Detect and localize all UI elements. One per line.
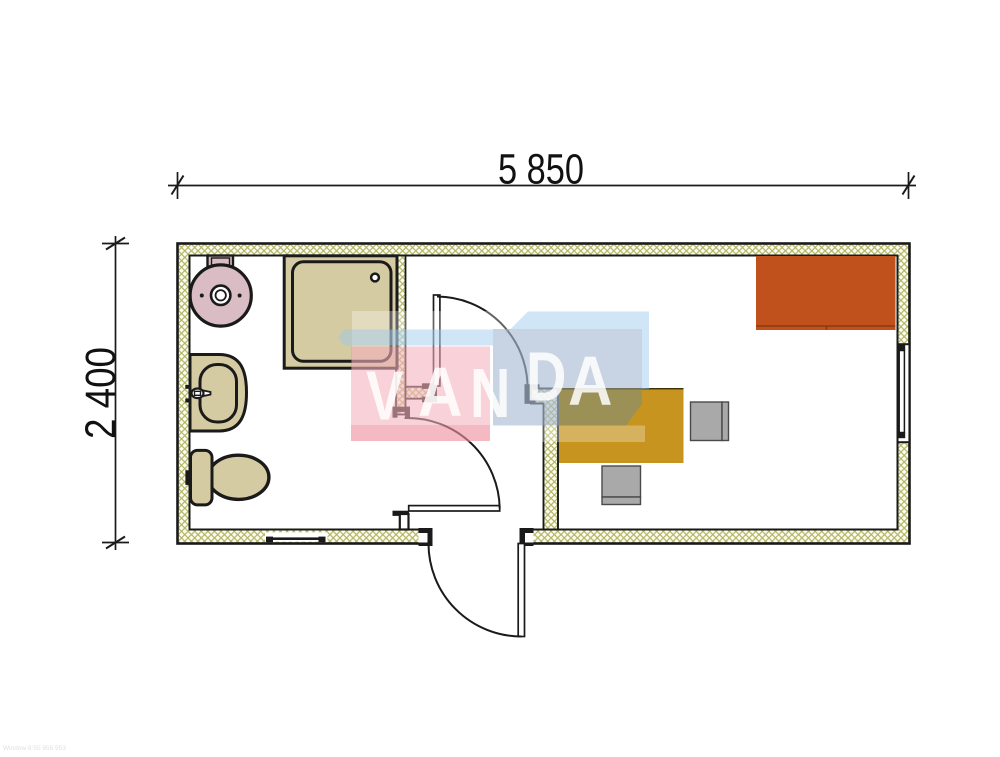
svg-text:2 400: 2 400 [77, 347, 125, 439]
svg-text:A: A [418, 352, 462, 431]
svg-text:A: A [568, 341, 612, 420]
svg-text:N: N [470, 355, 510, 432]
svg-text:V: V [366, 358, 403, 435]
svg-text:Window 8:55 955 953: Window 8:55 955 953 [3, 745, 66, 752]
svg-text:D: D [526, 339, 566, 416]
svg-text:5 850: 5 850 [498, 146, 584, 194]
